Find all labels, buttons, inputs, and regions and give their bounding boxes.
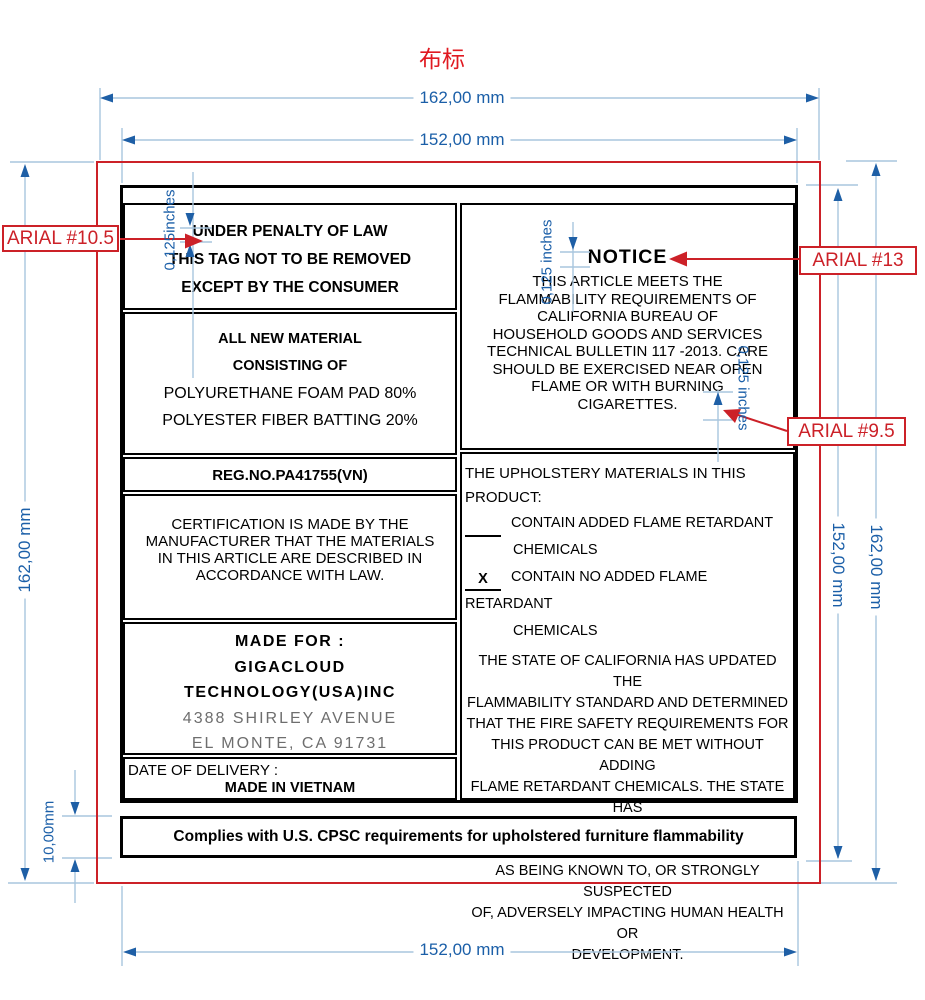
section-materials: ALL NEW MATERIAL CONSISTING OF POLYURETH… — [123, 312, 457, 455]
certification-line: CERTIFICATION IS MADE BY THE — [125, 516, 455, 533]
dim-right-inner: 152,00 mm — [828, 516, 848, 613]
inset-annotation-left: 0,125inches — [162, 190, 179, 271]
date-of-delivery-label: DATE OF DELIVERY : — [125, 759, 455, 779]
statement-line: THIS PRODUCT CAN BE MET WITHOUT ADDING — [465, 735, 790, 777]
dim-top-inner: 152,00 mm — [413, 130, 510, 150]
dim-right-outer: 162,00 mm — [866, 518, 886, 615]
compliance-text: Complies with U.S. CPSC requirements for… — [123, 819, 794, 855]
callout-arial-13: ARIAL #13 — [799, 246, 917, 275]
option-1-checkline — [465, 516, 501, 537]
materials-subtitle: CONSISTING OF — [125, 353, 455, 380]
materials-item: POLYURETHANE FOAM PAD 80% — [125, 380, 455, 407]
option-2-text-cont: CHEMICALS — [513, 618, 790, 645]
statement-line: FLAMMABILITY STANDARD AND DETERMINED — [465, 693, 790, 714]
upholstery-heading: THE UPHOLSTERY MATERIALS IN THIS PRODUCT… — [465, 462, 790, 510]
option-1-text: CONTAIN ADDED FLAME RETARDANT — [511, 515, 773, 531]
statement-line: FLAME RETARDANT CHEMICALS. THE STATE HAS — [465, 777, 790, 819]
penalty-line: EXCEPT BY THE CONSUMER — [125, 274, 455, 302]
section-certification: CERTIFICATION IS MADE BY THE MANUFACTURE… — [123, 494, 457, 620]
notice-heading: NOTICE — [462, 245, 793, 269]
company-name-line: GIGACLOUD — [125, 655, 455, 681]
notice-line: CALIFORNIA BUREAU OF — [462, 308, 793, 326]
label-spec-sheet: { "title": "布标", "dims": { "top_outer": … — [0, 0, 925, 1000]
statement-line: THAT THE FIRE SAFETY REQUIREMENTS FOR — [465, 714, 790, 735]
company-name-line: TECHNOLOGY(USA)INC — [125, 680, 455, 706]
section-made-for: MADE FOR : GIGACLOUD TECHNOLOGY(USA)INC … — [123, 622, 457, 755]
notice-line: THIS ARTICLE MEETS THE — [462, 273, 793, 291]
dim-bottom-inner: 152,00 mm — [413, 940, 510, 960]
company-address-line: 4388 SHIRLEY AVENUE — [125, 706, 455, 732]
callout-arial-9-5: ARIAL #9.5 — [787, 417, 906, 446]
materials-item: POLYESTER FIBER BATTING 20% — [125, 407, 455, 434]
section-upholstery: THE UPHOLSTERY MATERIALS IN THIS PRODUCT… — [460, 452, 795, 800]
statement-line: AS BEING KNOWN TO, OR STRONGLY SUSPECTED — [465, 861, 790, 903]
statement-line: THE STATE OF CALIFORNIA HAS UPDATED THE — [465, 651, 790, 693]
inset-annotation-notice: 0,125 inches — [539, 219, 556, 304]
certification-line: MANUFACTURER THAT THE MATERIALS — [125, 533, 455, 550]
materials-title: ALL NEW MATERIAL — [125, 326, 455, 353]
certification-line: IN THIS ARTICLE ARE DESCRIBED IN — [125, 550, 455, 567]
section-compliance: Complies with U.S. CPSC requirements for… — [120, 816, 797, 858]
upholstery-option-2: XCONTAIN NO ADDED FLAME RETARDANT — [465, 564, 790, 618]
option-2-text: CONTAIN NO ADDED FLAME RETARDANT — [465, 569, 707, 612]
inset-annotation-right: 0,125 inches — [735, 345, 752, 430]
callout-arial-10-5: ARIAL #10.5 — [2, 225, 119, 252]
section-reg-no: REG.NO.PA41755(VN) — [123, 457, 457, 492]
section-delivery: DATE OF DELIVERY : MADE IN VIETNAM — [123, 757, 457, 800]
statement-line: OF, ADVERSELY IMPACTING HUMAN HEALTH OR — [465, 903, 790, 945]
page-title: 布标 — [419, 40, 465, 74]
company-address-line: EL MONTE, CA 91731 — [125, 731, 455, 757]
notice-line: HOUSEHOLD GOODS AND SERVICES — [462, 326, 793, 344]
state-statement: THE STATE OF CALIFORNIA HAS UPDATED THE … — [465, 651, 790, 966]
statement-line: DEVELOPMENT. — [465, 945, 790, 966]
upholstery-option-1: CONTAIN ADDED FLAME RETARDANT — [465, 510, 790, 537]
certification-line: ACCORDANCE WITH LAW. — [125, 567, 455, 584]
reg-no-text: REG.NO.PA41755(VN) — [125, 467, 455, 484]
dim-strip-height: 10,00mm — [41, 795, 58, 870]
made-for-heading: MADE FOR : — [125, 629, 455, 655]
dim-top-outer: 162,00 mm — [413, 88, 510, 108]
option-2-checkline: X — [465, 570, 501, 591]
made-in-vietnam-text: MADE IN VIETNAM — [125, 780, 455, 796]
dim-left-outer: 162,00 mm — [15, 501, 35, 598]
option-1-text-cont: CHEMICALS — [513, 537, 790, 564]
notice-line: FLAMMABILITY REQUIREMENTS OF — [462, 291, 793, 309]
